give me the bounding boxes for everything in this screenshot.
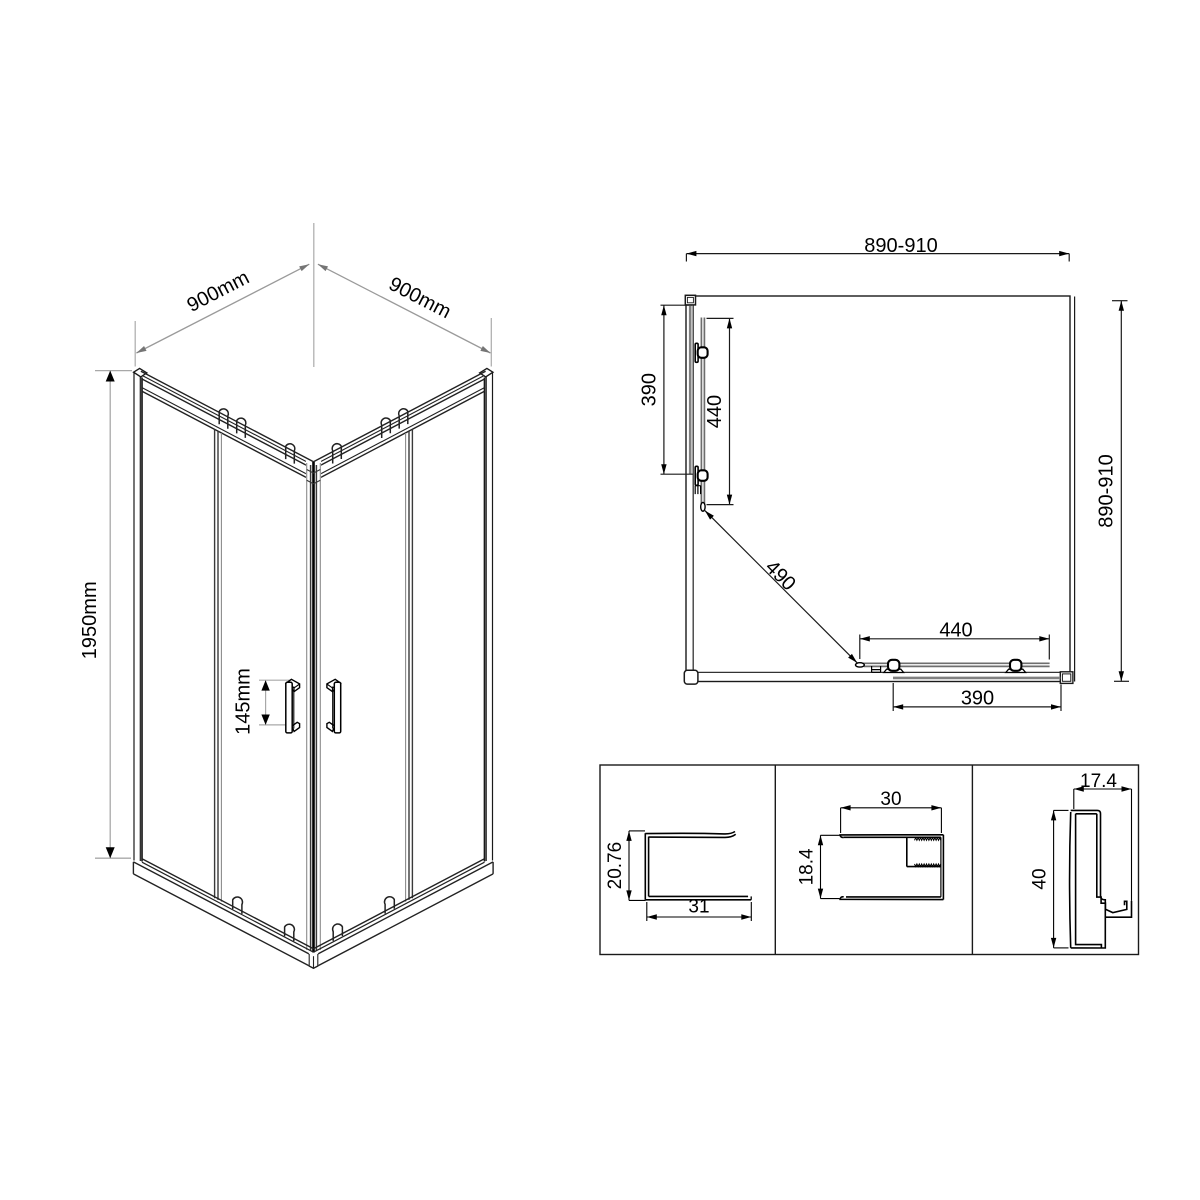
svg-text:390: 390 xyxy=(638,373,660,406)
svg-text:145mm: 145mm xyxy=(233,668,255,735)
svg-text:30: 30 xyxy=(880,789,901,810)
svg-text:390: 390 xyxy=(961,687,994,709)
svg-text:18.4: 18.4 xyxy=(796,848,817,885)
svg-text:20.76: 20.76 xyxy=(605,842,626,890)
svg-text:40: 40 xyxy=(1029,868,1050,889)
svg-text:17.4: 17.4 xyxy=(1080,771,1117,792)
svg-text:1950mm: 1950mm xyxy=(79,581,101,659)
svg-text:31: 31 xyxy=(688,896,709,917)
svg-text:890-910: 890-910 xyxy=(1096,454,1118,527)
svg-text:890-910: 890-910 xyxy=(864,235,937,257)
svg-text:440: 440 xyxy=(939,619,972,641)
svg-text:440: 440 xyxy=(704,395,726,428)
